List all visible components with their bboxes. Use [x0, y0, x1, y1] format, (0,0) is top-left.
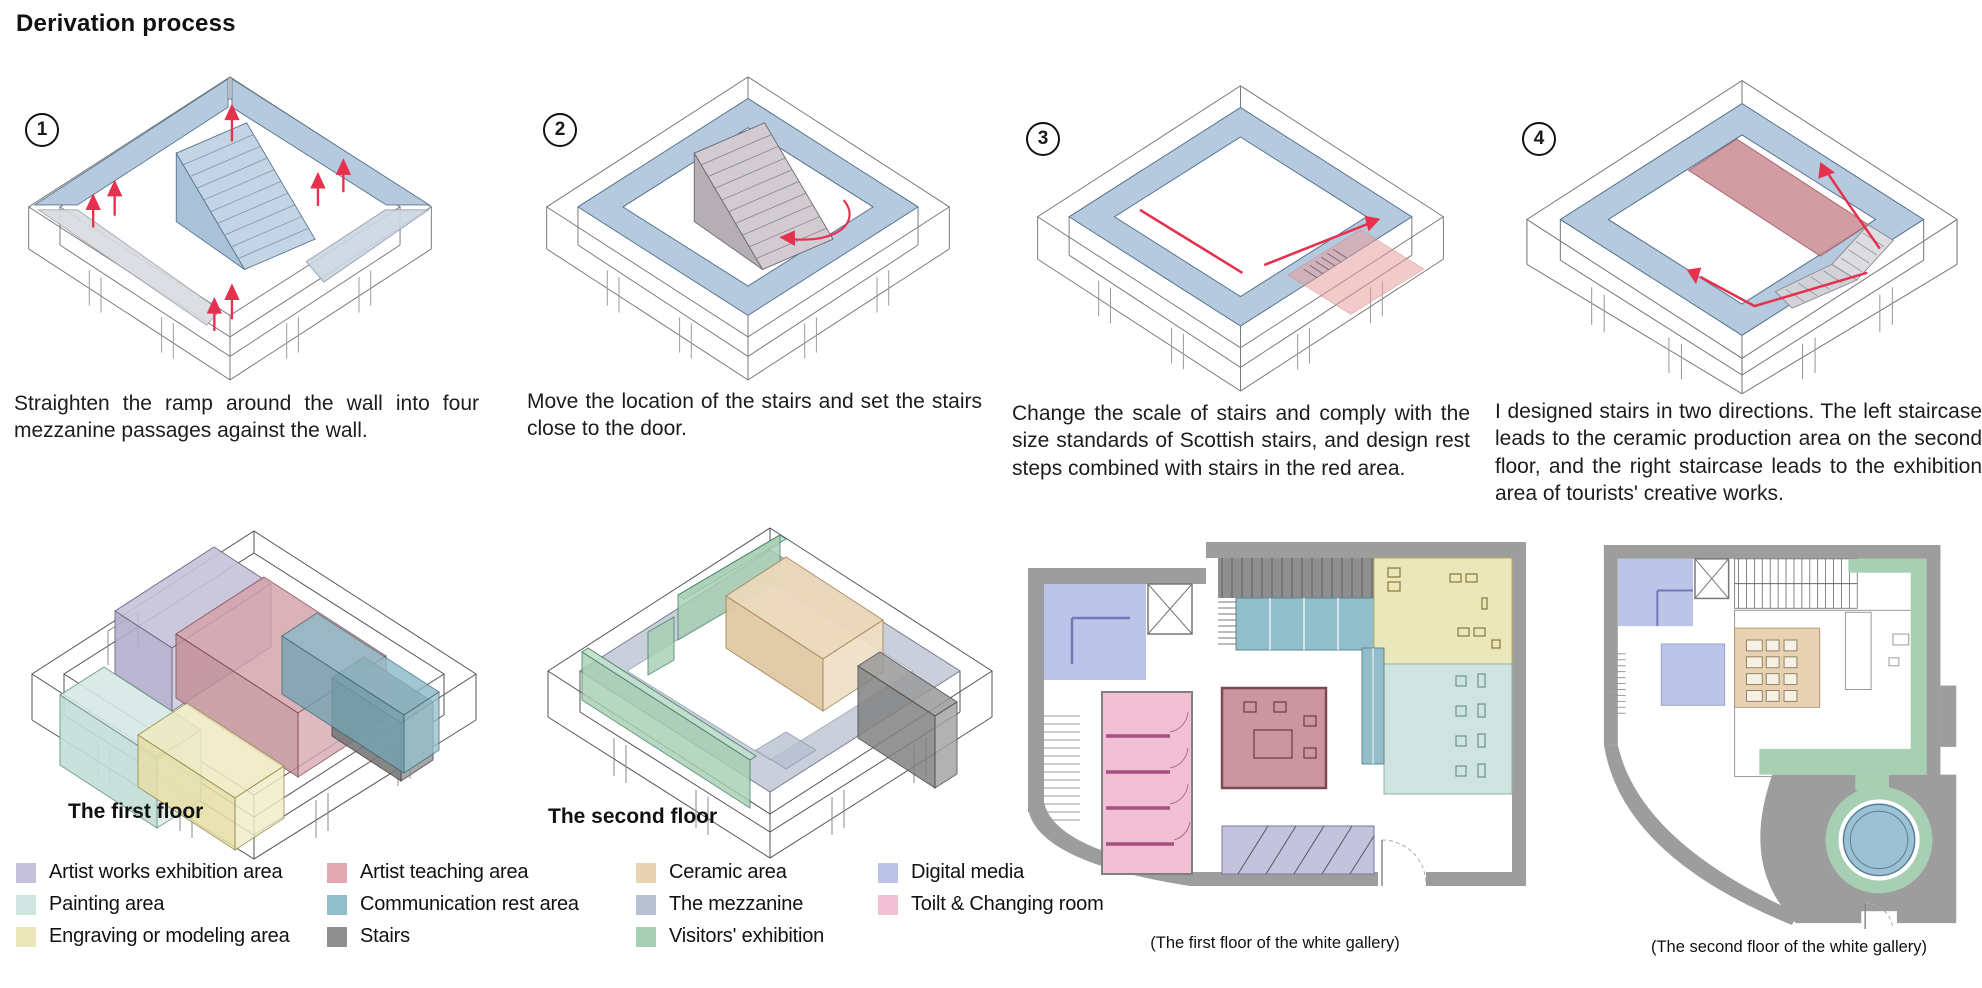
- page-title: Derivation process: [16, 10, 236, 38]
- legend-item: Digital media: [878, 862, 1104, 883]
- first-floor-label: The first floor: [68, 800, 203, 824]
- legend-item: Toilt & Changing room: [878, 894, 1104, 915]
- step-3-number: 3: [1026, 122, 1060, 156]
- round-exhibition: [1826, 786, 1933, 893]
- legend-column-1: Artist works exhibition area Painting ar…: [16, 862, 290, 947]
- legend-swatch: [636, 927, 656, 947]
- legend-label: Visitors' exhibition: [669, 925, 824, 948]
- legend-label: Toilt & Changing room: [911, 893, 1104, 916]
- step-3-caption: Change the scale of stairs and comply wi…: [1012, 400, 1470, 482]
- toilet-changing-room: [1102, 692, 1192, 874]
- painting-room: [1384, 664, 1512, 794]
- legend-label: Stairs: [360, 925, 410, 948]
- legend-swatch: [16, 895, 36, 915]
- ceramic-room: [1735, 628, 1820, 707]
- step-2-diagram: [533, 62, 963, 387]
- step-1-diagram: [15, 62, 445, 387]
- legend-item: Stairs: [327, 926, 579, 947]
- step-1-caption: Straighten the ramp around the wall into…: [14, 390, 479, 445]
- legend-label: Artist teaching area: [360, 861, 528, 884]
- legend-swatch: [878, 895, 898, 915]
- legend-swatch: [16, 927, 36, 947]
- second-floor-label: The second floor: [548, 805, 717, 829]
- legend-swatch: [327, 927, 347, 947]
- step-1-number: 1: [25, 113, 59, 147]
- artist-teaching-room: [1222, 688, 1326, 788]
- top-stairs: [1218, 558, 1374, 598]
- legend-label: Digital media: [911, 861, 1024, 884]
- legend-swatch: [636, 895, 656, 915]
- step-2-caption: Move the location of the stairs and set …: [527, 388, 982, 443]
- derivation-process-board: Derivation process 1 2 3 4: [0, 0, 1982, 988]
- legend-swatch: [636, 863, 656, 883]
- communication-rest-band: [1218, 598, 1374, 650]
- ramp-right: [306, 210, 428, 282]
- legend-item: Artist works exhibition area: [16, 862, 290, 883]
- legend-swatch: [878, 863, 898, 883]
- left-stairs: [1044, 716, 1080, 820]
- legend-label: Communication rest area: [360, 893, 579, 916]
- communication-strip: [1362, 648, 1384, 764]
- legend-item: Engraving or modeling area: [16, 926, 290, 947]
- step-4-caption: I designed stairs in two directions. The…: [1495, 398, 1982, 507]
- legend-column-3: Ceramic area The mezzanine Visitors' exh…: [636, 862, 824, 947]
- top-stairs: [1735, 559, 1858, 608]
- digital-media-room-2: [1661, 644, 1724, 705]
- step-3-diagram: [1018, 72, 1463, 397]
- legend-item: Visitors' exhibition: [636, 926, 824, 947]
- digital-media-room-1: [1618, 559, 1693, 626]
- step-4-number: 4: [1522, 122, 1556, 156]
- white-gallery-second-floor-plan: [1596, 538, 1982, 936]
- legend-item: Communication rest area: [327, 894, 579, 915]
- legend-item: The mezzanine: [636, 894, 824, 915]
- legend-item: Artist teaching area: [327, 862, 579, 883]
- legend-label: Painting area: [49, 893, 164, 916]
- legend-item: Ceramic area: [636, 862, 824, 883]
- legend-swatch: [16, 863, 36, 883]
- white-gallery-first-floor-plan: [1022, 540, 1594, 932]
- first-floor-plan-caption: (The first floor of the white gallery): [1075, 934, 1475, 953]
- step-4-diagram: [1512, 66, 1972, 398]
- second-floor-plan-caption: (The second floor of the white gallery): [1600, 938, 1978, 957]
- elevator: [1695, 559, 1729, 599]
- digital-media-room: [1044, 584, 1146, 680]
- legend-label: The mezzanine: [669, 893, 803, 916]
- legend-swatch: [327, 895, 347, 915]
- legend-label: Engraving or modeling area: [49, 925, 290, 948]
- legend-column-2: Artist teaching area Communication rest …: [327, 862, 579, 947]
- legend-item: Painting area: [16, 894, 290, 915]
- step-2-number: 2: [543, 113, 577, 147]
- legend-swatch: [327, 863, 347, 883]
- legend-label: Ceramic area: [669, 861, 787, 884]
- mezzanine-ramp: [1222, 826, 1374, 874]
- entrance-door: [1382, 840, 1426, 886]
- legend-column-4: Digital media Toilt & Changing room: [878, 862, 1104, 915]
- legend-label: Artist works exhibition area: [49, 861, 282, 884]
- elevator: [1148, 584, 1192, 634]
- engraving-modeling-room: [1374, 558, 1512, 664]
